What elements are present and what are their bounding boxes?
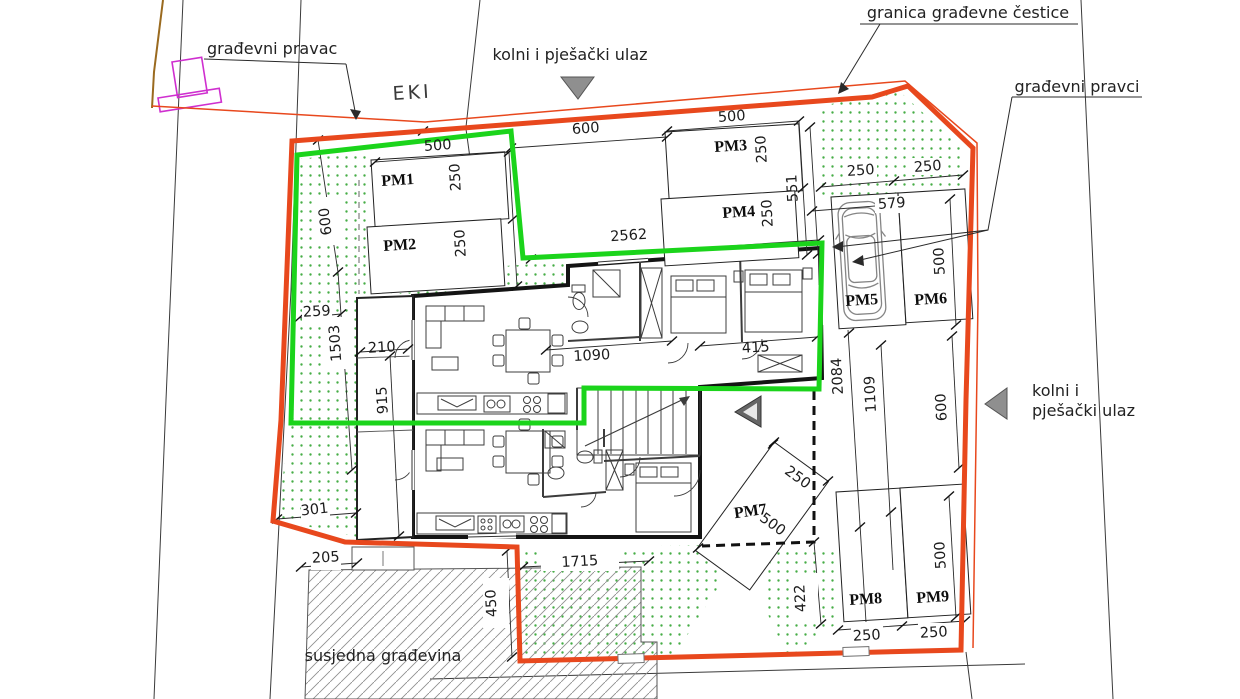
site-plan-page: susjedna građevina [0, 0, 1240, 699]
boundary-label: granica građevne čestice [867, 3, 1069, 22]
parcel-line-bottom-right [966, 652, 972, 699]
entrance-top-label: kolni i pješački ulaz [492, 45, 647, 64]
dim-label: 250 [920, 624, 948, 641]
parking-label-pm3: PM3 [714, 137, 748, 156]
dim-label: 450 [483, 589, 500, 617]
dim-label: 250 [853, 627, 881, 644]
parking-label-pm6: PM6 [914, 290, 948, 309]
dim-label: 600 [316, 207, 335, 236]
dim-label: 1090 [573, 347, 611, 365]
dim-label: 250 [447, 163, 464, 191]
dim-label: 250 [846, 162, 875, 180]
parking-stall-pm4 [661, 191, 799, 266]
dim-label: 500 [932, 541, 949, 569]
dim-label: 301 [300, 501, 329, 520]
dim-label: 210 [368, 339, 396, 356]
hatch-top-right [818, 89, 966, 196]
dim-label: 422 [792, 584, 809, 612]
entrance-right-label-1: kolni i [1032, 381, 1079, 400]
dim-label: 205 [312, 549, 340, 566]
dim-label: 2084 [829, 357, 847, 395]
parking-stall-pm3 [665, 124, 803, 199]
dim-label: 1109 [862, 375, 880, 413]
dim-label: 551 [784, 174, 801, 202]
building-side-strip [357, 296, 413, 540]
dim-label: 1503 [327, 324, 346, 362]
dim-label: 579 [877, 195, 906, 213]
dim-label: 250 [913, 158, 942, 176]
parking-label-pm5: PM5 [845, 291, 879, 310]
parcel-line-right [1081, 0, 1113, 699]
building-lines-label: građevni pravci [1015, 77, 1140, 96]
parking-label-pm9: PM9 [916, 588, 950, 607]
dim-label: 415 [742, 339, 770, 356]
parking-stall-pm2 [367, 219, 505, 294]
parking-label-pm8: PM8 [849, 590, 883, 609]
dim-label: 600 [571, 120, 600, 138]
dim-label: 500 [717, 108, 746, 126]
road-edge-brown-line [152, 0, 163, 108]
dim-label: 600 [933, 393, 950, 421]
site-plan-drawing: susjedna građevina [0, 0, 1240, 699]
dim-label: 259 [303, 303, 331, 320]
building-line-label: građevni pravac [207, 39, 337, 58]
dim-label: 250 [452, 229, 469, 257]
parking-label-pm2: PM2 [383, 236, 417, 255]
dim-label: 500 [423, 137, 452, 155]
entrance-right-label-2: pješački ulaz [1032, 401, 1135, 420]
dim-label: 250 [759, 199, 776, 227]
dim-label: 2562 [610, 227, 648, 246]
dim-label: 915 [374, 386, 391, 414]
entrance-top-arrow-icon [561, 77, 594, 99]
dim-label: 1715 [561, 553, 599, 571]
parcel-line-top [466, 0, 480, 127]
entrance-right-arrow-icon [985, 388, 1007, 419]
neighbor-building-label: susjedna građevina [305, 646, 462, 665]
magenta-structure [158, 57, 221, 112]
road-name-label: EKI [392, 81, 432, 105]
parking-label-pm1: PM1 [381, 171, 415, 190]
dim-label: 500 [931, 247, 948, 275]
parking-label-pm4: PM4 [722, 203, 756, 222]
dim-label: 250 [753, 135, 770, 163]
